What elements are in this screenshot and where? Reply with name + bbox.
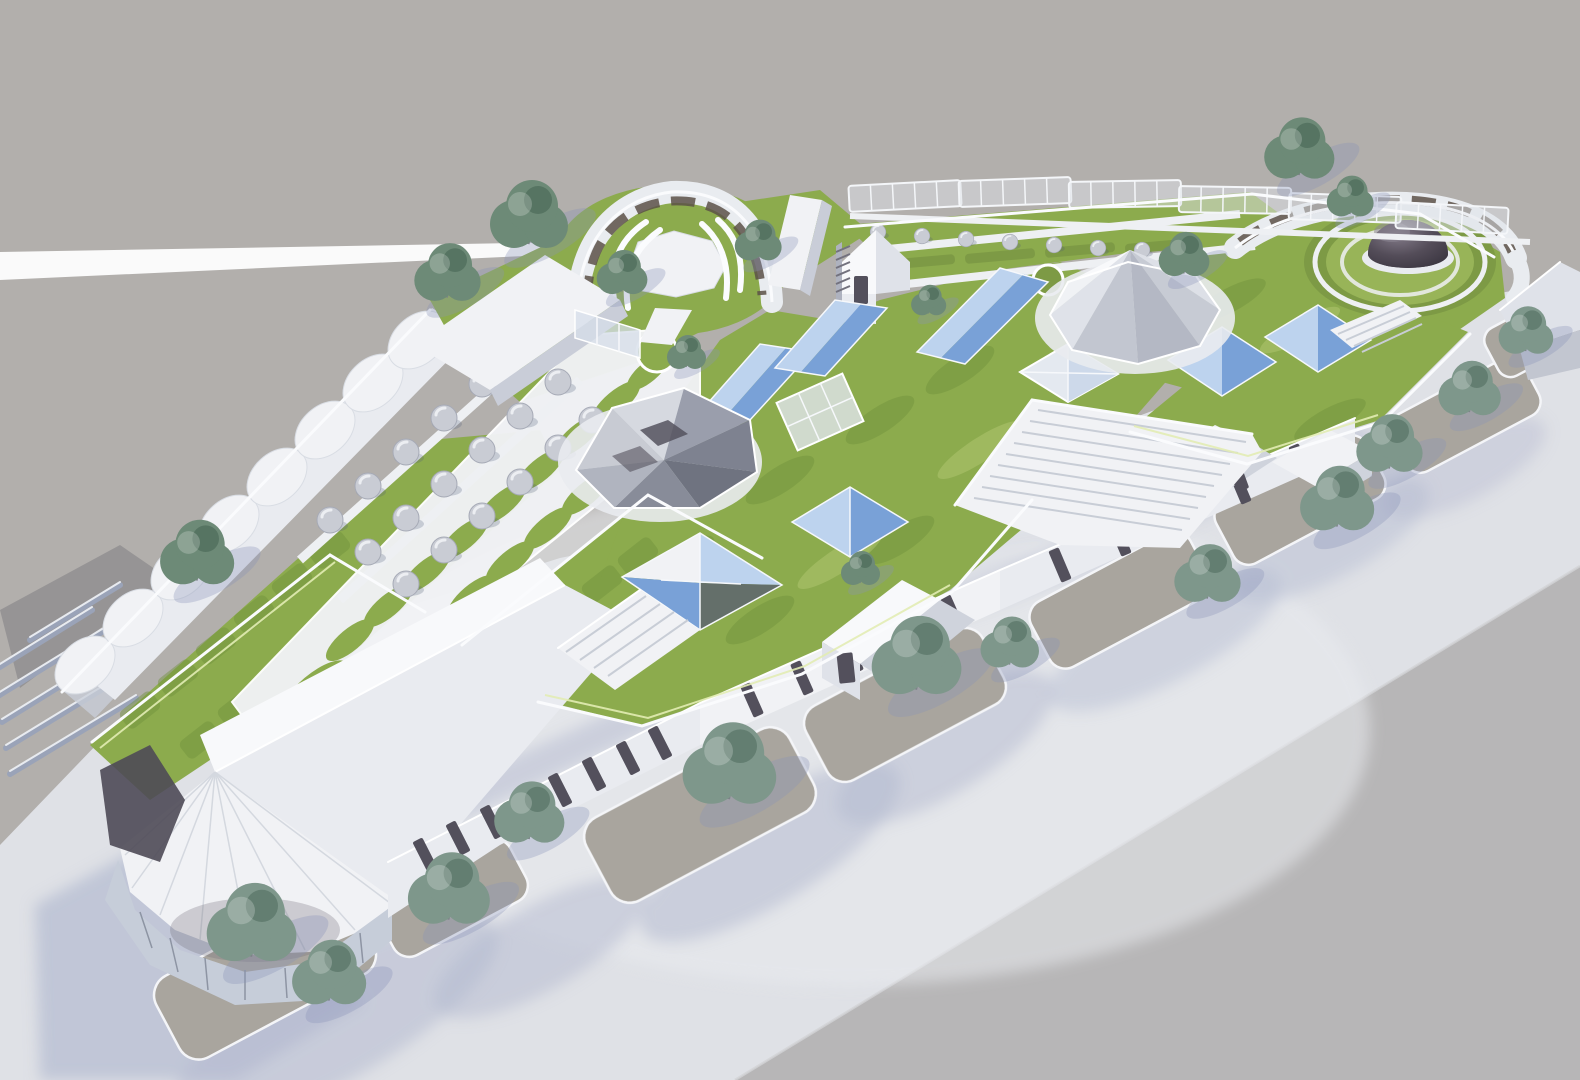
band-tail: [1514, 258, 1522, 298]
scene-svg: [0, 0, 1580, 1080]
rendered-scene: [0, 0, 1580, 1080]
